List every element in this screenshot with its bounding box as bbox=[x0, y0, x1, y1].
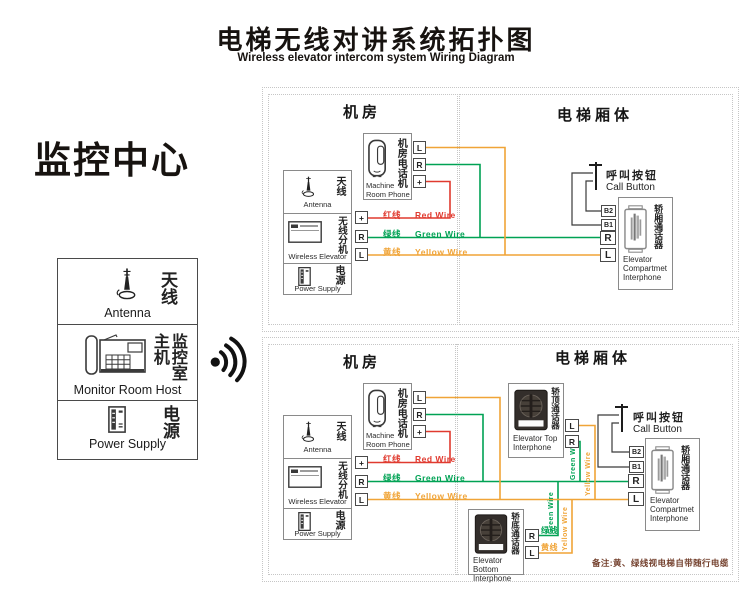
terminal-plus: + bbox=[413, 175, 426, 188]
compartment-interphone-label-cn: 轿厢通话器 bbox=[680, 445, 690, 493]
compartment-interphone-label-en: Elevator Compartmet Interphone bbox=[650, 496, 699, 524]
terminal-plus: + bbox=[413, 425, 426, 438]
elevator-bottom-interphone-box: 轿底通话器 Elevator Bottom Interphone bbox=[468, 509, 524, 575]
monitor-center-title: 监控中心 bbox=[34, 130, 190, 184]
yellow-wire-label-en: Yellow Wire bbox=[415, 491, 468, 501]
terminal-L: L bbox=[600, 248, 616, 262]
call-button-label-en: Call Button bbox=[633, 424, 682, 435]
speaker-interphone-icon bbox=[474, 514, 508, 554]
red-wire-label-cn: 红线 bbox=[383, 454, 401, 464]
page-subtitle: Wireless elevator intercom system Wiring… bbox=[190, 52, 562, 64]
green-wire-label-cn: 绿线 bbox=[383, 229, 401, 239]
antenna-icon bbox=[300, 420, 317, 445]
terminal-R: R bbox=[525, 529, 539, 542]
monitor-host-section: 监控室主机 Monitor Room Host bbox=[58, 324, 197, 400]
power-label-en: Power Supply bbox=[284, 530, 351, 539]
compartment-interphone-icon bbox=[624, 205, 647, 253]
elevator-bottom-interphone-label-en: Elevator Bottom Interphone bbox=[473, 556, 523, 584]
terminal-B1: B1 bbox=[601, 219, 616, 231]
terminal-R: R bbox=[413, 158, 426, 171]
red-wire-label-en: Red Wire bbox=[415, 210, 456, 220]
terminal-L: L bbox=[355, 248, 368, 261]
green-wire-label: 绿线Green Wire bbox=[383, 472, 465, 484]
wireless-extension-icon bbox=[288, 466, 322, 488]
terminal-L: L bbox=[413, 391, 426, 404]
power-label-cn: 电源 bbox=[333, 510, 344, 530]
power-section: 电源 Power Supply bbox=[284, 263, 351, 296]
terminal-plus: + bbox=[355, 211, 368, 224]
terminal-B2: B2 bbox=[629, 446, 644, 458]
terminal-L: L bbox=[413, 141, 426, 154]
antenna-icon bbox=[300, 175, 317, 200]
power-label-cn: 电源 bbox=[333, 265, 344, 285]
elevator-bottom-interphone-label-cn: 轿底通话器 bbox=[510, 512, 520, 556]
terminal-R: R bbox=[628, 474, 644, 488]
green-wire-label-cn: 绿线 bbox=[383, 473, 401, 483]
terminal-B2: B2 bbox=[601, 205, 616, 217]
power-supply-icon bbox=[108, 406, 126, 433]
antenna-icon bbox=[114, 265, 140, 305]
wireless-unit-box-2: 天线 Antenna 无线分机 Wireless Elevator 电源 Pow… bbox=[283, 415, 352, 540]
yellow-wire-label: 黄线Yellow Wire bbox=[383, 246, 468, 258]
wireless-label-cn: 无线分机 bbox=[335, 216, 346, 254]
green-wire-label-en: Green Wire bbox=[415, 229, 465, 239]
wireless-extension-icon bbox=[288, 221, 322, 243]
terminal-L: L bbox=[565, 419, 579, 432]
antenna-label-en: Antenna bbox=[284, 446, 351, 455]
yellow-wire-label: 黄线Yellow Wire bbox=[383, 490, 468, 502]
yellow-wire-vertical-label-down: Yellow Wire bbox=[562, 507, 569, 551]
wireless-section: 无线分机 Wireless Elevator bbox=[284, 213, 351, 263]
antenna-section: 天线 Antenna bbox=[284, 171, 351, 213]
power-label-en: Power Supply bbox=[284, 285, 351, 294]
monitor-host-label-cn: 监控室主机 bbox=[150, 333, 186, 385]
compartment-interphone-box-2: 轿厢通话器 Elevator Compartmet Interphone bbox=[645, 438, 700, 531]
terminal-R: R bbox=[355, 475, 368, 488]
yellow-wire-short-label: 黄线 bbox=[541, 542, 558, 553]
system-1-elevator-body-border bbox=[459, 94, 733, 325]
terminal-L: L bbox=[525, 546, 539, 559]
monitor-host-label-en: Monitor Room Host bbox=[58, 383, 197, 397]
machine-room-phone-box-1: 机房电话机 Machine Room Phone bbox=[363, 133, 412, 200]
terminal-plus: + bbox=[355, 456, 368, 469]
terminal-R: R bbox=[565, 435, 579, 448]
green-wire-label-en: Green Wire bbox=[415, 473, 465, 483]
desk-phone-icon bbox=[84, 331, 148, 379]
wireless-signal-icon bbox=[206, 333, 254, 385]
elevator-top-interphone-label-en: Elevator Top Interphone bbox=[513, 434, 563, 452]
yellow-wire-label-en: Yellow Wire bbox=[415, 247, 468, 257]
handset-phone-icon bbox=[368, 139, 389, 180]
machine-room-phone-label-en: Machine Room Phone bbox=[366, 432, 411, 449]
monitor-power-label-en: Power Supply bbox=[58, 437, 197, 451]
antenna-section: 天线 Antenna bbox=[284, 416, 351, 458]
antenna-label-en: Antenna bbox=[284, 201, 351, 210]
terminal-R: R bbox=[413, 408, 426, 421]
red-wire-label: 红线Red Wire bbox=[383, 209, 456, 221]
call-button-label-en: Call Button bbox=[606, 182, 655, 193]
compartment-interphone-label-en: Elevator Compartmet Interphone bbox=[623, 255, 672, 283]
machine-room-phone-box-2: 机房电话机 Machine Room Phone bbox=[363, 383, 412, 450]
terminal-R: R bbox=[355, 230, 368, 243]
wireless-label-en: Wireless Elevator bbox=[284, 498, 351, 507]
terminal-L: L bbox=[628, 492, 644, 506]
machine-room-phone-label-en: Machine Room Phone bbox=[366, 182, 411, 199]
terminal-L: L bbox=[355, 493, 368, 506]
footnote: 备注:黄、绿线视电梯自带随行电缆 bbox=[592, 557, 729, 569]
yellow-wire-vertical-label-up: Yellow Wire bbox=[585, 452, 592, 496]
compartment-interphone-label-cn: 轿厢通话器 bbox=[653, 204, 663, 252]
speaker-interphone-icon bbox=[514, 389, 548, 431]
wireless-section: 无线分机 Wireless Elevator bbox=[284, 458, 351, 508]
elevator-top-interphone-box: 轿顶通话器 Elevator Top Interphone bbox=[508, 383, 564, 458]
machine-room-label-1: 机房 bbox=[268, 101, 456, 122]
wiring-diagram-canvas: 电梯无线对讲系统拓扑图 Wireless elevator intercom s… bbox=[0, 0, 750, 589]
monitor-antenna-label-en: Antenna bbox=[58, 306, 197, 320]
monitor-power-label-cn: 电源 bbox=[160, 405, 179, 439]
green-wire-label: 绿线Green Wire bbox=[383, 228, 465, 240]
wireless-label-cn: 无线分机 bbox=[335, 461, 346, 499]
terminal-R: R bbox=[600, 231, 616, 245]
handset-phone-icon bbox=[368, 389, 389, 430]
power-section: 电源 Power Supply bbox=[284, 508, 351, 541]
green-wire-short-label: 绿线 bbox=[541, 525, 558, 536]
antenna-label-cn: 天线 bbox=[334, 421, 345, 441]
wireless-unit-box-1: 天线 Antenna 无线分机 Wireless Elevator 电源 Pow… bbox=[283, 170, 352, 295]
yellow-wire-label-cn: 黄线 bbox=[383, 247, 401, 257]
call-button-label-cn: 呼叫按钮 bbox=[606, 167, 658, 183]
red-wire-label-en: Red Wire bbox=[415, 454, 456, 464]
red-wire-label-cn: 红线 bbox=[383, 210, 401, 220]
elevator-top-interphone-label-cn: 轿顶通话器 bbox=[550, 387, 560, 433]
compartment-interphone-icon bbox=[651, 446, 674, 494]
machine-room-label-2: 机房 bbox=[268, 351, 456, 372]
terminal-B1: B1 bbox=[629, 461, 644, 473]
monitor-center-box: 天线 Antenna 监控室主机 Monitor Room Host bbox=[57, 258, 198, 460]
yellow-wire-label-cn: 黄线 bbox=[383, 491, 401, 501]
compartment-interphone-box-1: 轿厢通话器 Elevator Compartmet Interphone bbox=[618, 197, 673, 290]
monitor-antenna-label-cn: 天线 bbox=[158, 271, 177, 305]
red-wire-label: 红线Red Wire bbox=[383, 453, 456, 465]
elevator-body-label-1: 电梯厢体 bbox=[459, 104, 731, 125]
call-button-label-cn: 呼叫按钮 bbox=[633, 409, 685, 425]
monitor-antenna-section: 天线 Antenna bbox=[58, 259, 197, 324]
monitor-power-section: 电源 Power Supply bbox=[58, 400, 197, 455]
antenna-label-cn: 天线 bbox=[334, 176, 345, 196]
elevator-body-label-2: 电梯厢体 bbox=[455, 347, 731, 368]
wireless-label-en: Wireless Elevator bbox=[284, 253, 351, 262]
